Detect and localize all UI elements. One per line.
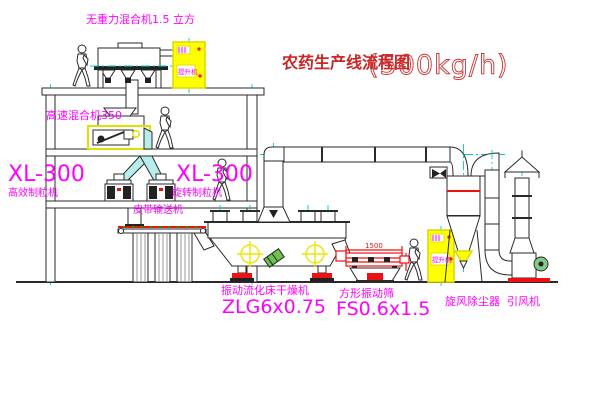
rain-cap xyxy=(505,157,539,172)
elevator-1-label: 提升机 xyxy=(178,67,198,76)
diagram-title: 农药生产线流程图 (500kg/h) xyxy=(281,50,509,81)
label-belt-conveyor: 皮带输送机 xyxy=(133,203,183,216)
bottom-elbow xyxy=(485,250,512,275)
elevator-2-label: 提升机 xyxy=(432,255,452,264)
label-gravity-mixer: 无重力混合机1.5 立方 xyxy=(86,12,195,26)
label-high-speed-mixer: 高速混合机350 xyxy=(46,108,122,122)
granulator-right xyxy=(147,174,175,201)
label-xl300-mid-sub: 旋转制粒机 xyxy=(172,186,222,199)
belt-conveyor xyxy=(118,226,214,282)
bucket-elevator-1: 提升机 xyxy=(173,38,205,93)
induced-draft-fan xyxy=(508,253,550,282)
title-capacity: (500kg/h) xyxy=(368,50,509,81)
cyclone-inlet-elbow xyxy=(450,147,468,176)
dimension-1500: 1500 xyxy=(346,242,402,254)
label-dryer: 振动流化床干燥机 xyxy=(221,283,309,297)
label-xl300-left: XL-300 xyxy=(8,162,85,187)
label-screen-model: FS0.6x1.5 xyxy=(336,298,430,320)
bucket-elevator-2: 提升机 xyxy=(428,226,454,286)
dryer-foot-right xyxy=(310,266,334,282)
diagram-svg: 提升机 xyxy=(0,0,600,403)
label-fan: 引风机 xyxy=(507,294,540,308)
gravity-mixer xyxy=(90,43,173,114)
cyclone-discharge-funnel xyxy=(455,251,472,261)
person-figure xyxy=(73,45,90,86)
person-figure xyxy=(156,107,173,148)
flow-diagram-canvas: 提升机 xyxy=(0,0,600,403)
label-dryer-model: ZLG6x0.75 xyxy=(222,296,326,318)
label-xl300-mid: XL-300 xyxy=(176,162,253,187)
svg-text:1500: 1500 xyxy=(365,242,383,250)
conveyor-legs xyxy=(133,233,192,282)
fan-base xyxy=(508,278,550,282)
label-xl300-left-sub: 高效制粒机 xyxy=(8,186,58,199)
label-cyclone: 旋风除尘器 xyxy=(445,294,500,308)
